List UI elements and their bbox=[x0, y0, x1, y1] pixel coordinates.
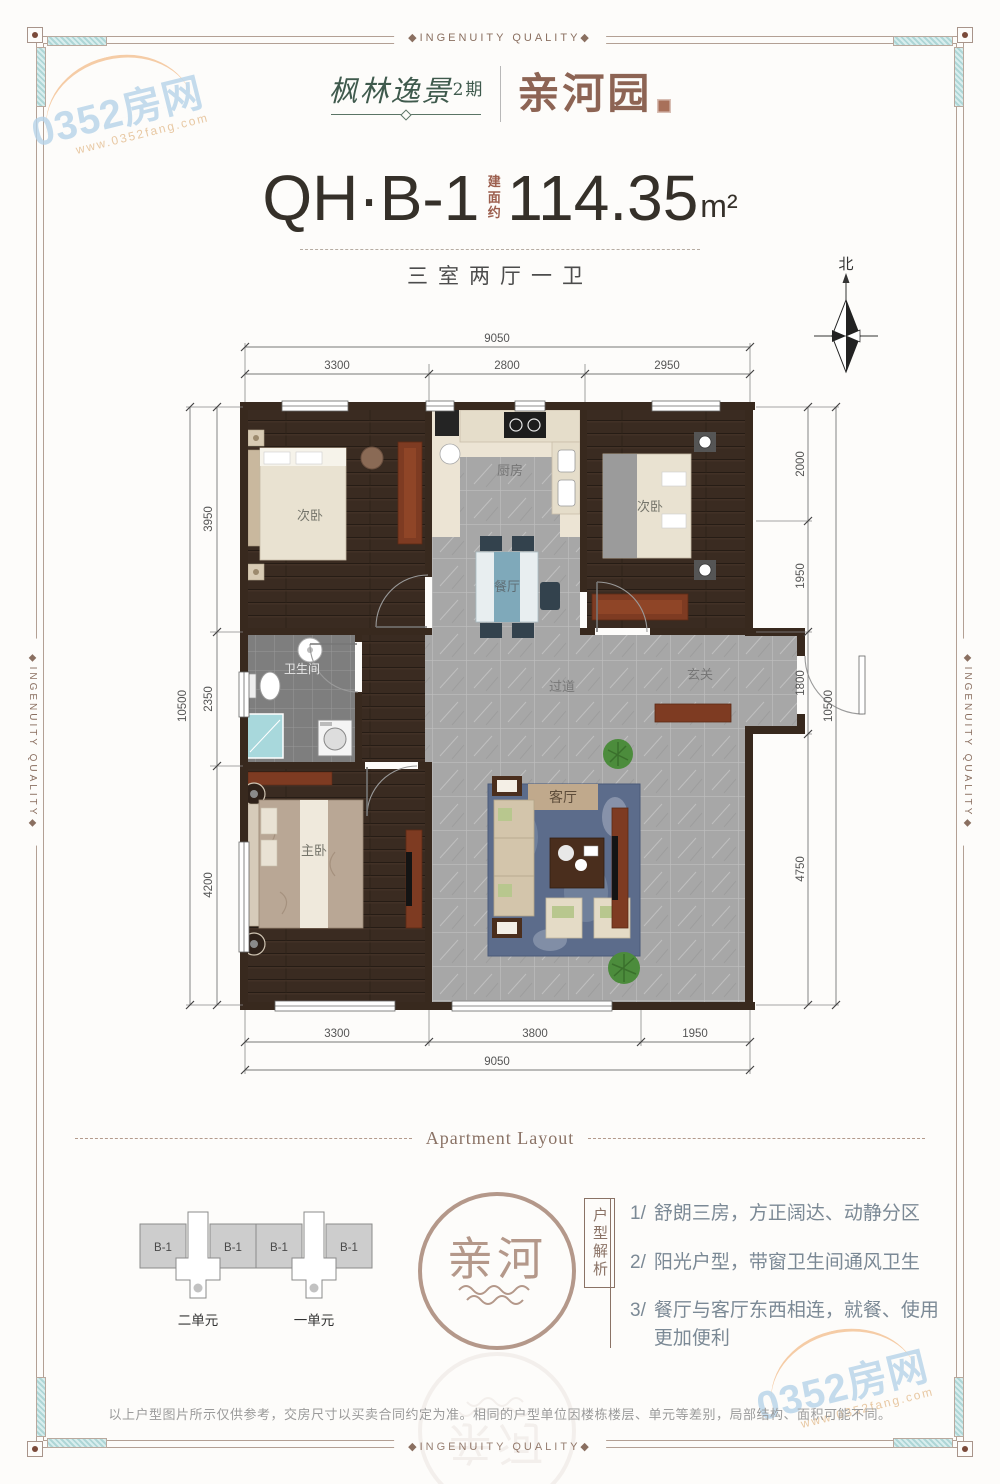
divider-dash bbox=[75, 1138, 412, 1139]
dim-bottom-seg: 3800 bbox=[522, 1028, 548, 1040]
dim-right-seg: 2000 bbox=[795, 451, 807, 477]
floor-plan-svg: 次卧 厨房 次卧 餐厅 卫生间 过道 玄关 主卧 客厅 bbox=[160, 252, 910, 1107]
logo-divider bbox=[500, 66, 501, 122]
frame-teal-strip bbox=[893, 1438, 953, 1448]
dim-bottom-total: 9050 bbox=[484, 1056, 510, 1068]
dim-right-total: 10500 bbox=[823, 690, 835, 722]
dim-left-seg: 2350 bbox=[203, 686, 215, 712]
frame-corner-ornament bbox=[957, 1441, 973, 1457]
dim-left-seg: 4200 bbox=[203, 872, 215, 898]
quality-label-top: ◆INGENUITY QUALITY◆ bbox=[394, 31, 606, 44]
brand-circle-logo: 亲河 bbox=[418, 1192, 576, 1350]
point-index: 2/ bbox=[630, 1249, 646, 1277]
area-unit: m² bbox=[700, 188, 737, 225]
dim-right-seg: 1800 bbox=[795, 670, 807, 696]
title-underline bbox=[300, 249, 700, 250]
unit-type-label: B-1 bbox=[270, 1242, 288, 1254]
frame-corner-ornament bbox=[27, 1441, 43, 1457]
unit-name: 二单元 bbox=[178, 1313, 219, 1328]
brand-circle-text: 亲河 bbox=[447, 1235, 547, 1283]
area-prefix: 建面约 bbox=[486, 174, 502, 221]
ornament-line bbox=[331, 114, 481, 121]
room-label-entry: 玄关 bbox=[687, 667, 713, 682]
frame-corner-ornament bbox=[27, 27, 43, 43]
frame-corner-ornament bbox=[957, 27, 973, 43]
point-index: 1/ bbox=[630, 1200, 646, 1228]
dim-left-seg: 3950 bbox=[203, 506, 215, 532]
poster-page: ◆INGENUITY QUALITY◆ ◆INGENUITY QUALITY◆ … bbox=[0, 0, 1000, 1484]
frame-teal-strip bbox=[47, 36, 107, 46]
seal-icon bbox=[657, 99, 671, 113]
unit-one: B-1 B-1 一单元 bbox=[256, 1212, 372, 1328]
room-label-living: 客厅 bbox=[549, 789, 577, 805]
project-name: 枫林逸景 bbox=[329, 74, 453, 108]
analysis-heading-line bbox=[610, 1198, 611, 1348]
disclaimer-text: 以上户型图片所示仅供参考，交房尺寸以买卖合同约定为准。相同的户型单位因楼栋楼层、… bbox=[0, 1404, 1000, 1423]
frame-teal-strip bbox=[47, 1438, 107, 1448]
dim-bottom-seg: 3300 bbox=[324, 1028, 350, 1040]
dim-top-total: 9050 bbox=[484, 333, 510, 345]
header-logo-row: 枫林逸景2期 亲河园 bbox=[0, 66, 1000, 122]
divider-dash bbox=[588, 1138, 925, 1139]
waves-icon bbox=[455, 1283, 539, 1307]
project-logo: 枫林逸景2期 bbox=[329, 68, 485, 121]
unit-type-label: B-1 bbox=[224, 1242, 242, 1254]
unit-type-label: B-1 bbox=[154, 1242, 172, 1254]
analysis-point: 3/ 餐厅与客厅东西相连，就餐、使用更加便利 bbox=[630, 1297, 950, 1352]
sub-brand-logo: 亲河园 bbox=[517, 73, 671, 115]
analysis-points: 1/ 舒朗三房，方正阔达、动静分区 2/ 阳光户型，带窗卫生间通风卫生 3/ 餐… bbox=[630, 1200, 950, 1373]
point-index: 3/ bbox=[630, 1297, 646, 1352]
dim-top-seg: 3300 bbox=[324, 360, 350, 372]
dim-top-seg: 2800 bbox=[494, 360, 520, 372]
room-label-bedroom-right: 次卧 bbox=[637, 499, 663, 514]
dim-top-seg: 2950 bbox=[654, 360, 680, 372]
room-label-hallway: 过道 bbox=[549, 679, 575, 694]
dim-bottom-seg: 1950 bbox=[682, 1028, 708, 1040]
room-label-dining: 餐厅 bbox=[494, 579, 520, 594]
analysis-point: 1/ 舒朗三房，方正阔达、动静分区 bbox=[630, 1200, 950, 1228]
dim-right-seg: 1950 bbox=[795, 563, 807, 589]
unit-type-label: B-1 bbox=[340, 1242, 358, 1254]
dim-left-total: 10500 bbox=[177, 690, 189, 722]
project-phase: 2期 bbox=[453, 80, 485, 100]
section-title: Apartment Layout bbox=[412, 1128, 588, 1149]
room-label-bedroom-left: 次卧 bbox=[297, 508, 323, 523]
room-label-master: 主卧 bbox=[301, 843, 327, 858]
frame-teal-strip bbox=[893, 36, 953, 46]
floor-plan: 次卧 厨房 次卧 餐厅 卫生间 过道 玄关 主卧 客厅 bbox=[160, 252, 910, 1107]
analysis-point: 2/ 阳光户型，带窗卫生间通风卫生 bbox=[630, 1249, 950, 1277]
section-divider: Apartment Layout bbox=[75, 1128, 925, 1149]
point-text: 餐厅与客厅东西相连，就餐、使用更加便利 bbox=[654, 1297, 950, 1352]
layout-summary: 三室两厅一卫 bbox=[0, 260, 1000, 290]
building-units-diagram: B-1 B-1 二单元 B-1 B-1 一单元 bbox=[138, 1200, 388, 1340]
area-value: 114.35 bbox=[507, 168, 698, 229]
point-text: 阳光户型，带窗卫生间通风卫生 bbox=[654, 1249, 920, 1277]
unit-name: 一单元 bbox=[294, 1313, 335, 1328]
dim-right-seg: 4750 bbox=[795, 856, 807, 882]
sub-brand-name: 亲河园 bbox=[517, 73, 652, 115]
living-room-furniture bbox=[488, 776, 640, 984]
units-svg: B-1 B-1 二单元 B-1 B-1 一单元 bbox=[138, 1200, 388, 1335]
room-label-bathroom: 卫生间 bbox=[284, 662, 320, 676]
quality-label-right: ◆INGENUITY QUALITY◆ bbox=[962, 639, 973, 846]
unit-two: B-1 B-1 二单元 bbox=[140, 1212, 256, 1328]
unit-title: QH·B-1 建面约 114.35 m² bbox=[0, 168, 1000, 229]
unit-code: QH·B-1 bbox=[262, 168, 479, 229]
room-label-kitchen: 厨房 bbox=[497, 463, 523, 478]
point-text: 舒朗三房，方正阔达、动静分区 bbox=[654, 1200, 920, 1228]
quality-label-left: ◆INGENUITY QUALITY◆ bbox=[27, 639, 38, 846]
